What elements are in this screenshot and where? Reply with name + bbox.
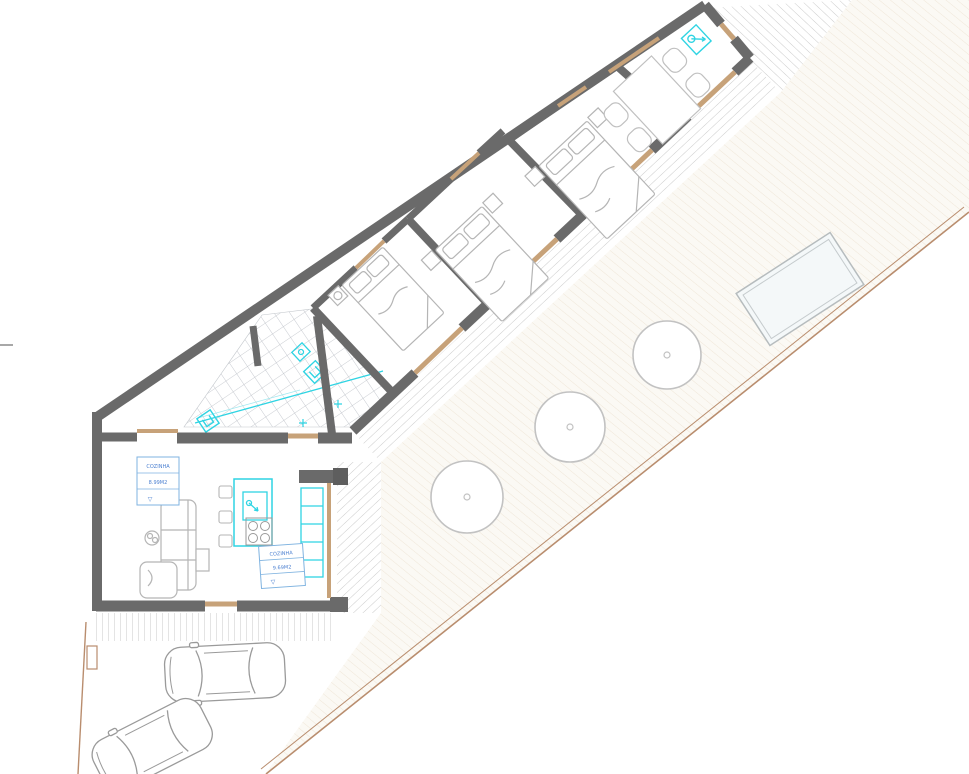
- boundary-line-left: [78, 622, 86, 774]
- stool-icon: [219, 486, 232, 498]
- tree-icon: [535, 392, 605, 462]
- water-heater-icon: [681, 25, 711, 55]
- label-room-name: COZINHA: [146, 464, 170, 470]
- car-icon: [163, 638, 286, 707]
- bathroom-tiled-floor: [184, 309, 390, 427]
- label-room-symbol: ▽: [271, 578, 276, 585]
- armchair-icon: [140, 562, 177, 598]
- tree-icon: [633, 321, 701, 389]
- island-counter: [234, 479, 272, 546]
- sofa-icon: [140, 500, 209, 598]
- floor-plan-page: COZINHA 8.99M2 ▽ COZINHA 9.69M2 ▽: [0, 0, 969, 774]
- floor-plan-drawing: COZINHA 8.99M2 ▽ COZINHA 9.69M2 ▽: [0, 0, 969, 774]
- room-label-kitchen: COZINHA 9.69M2 ▽: [259, 544, 306, 589]
- deck-strip-entry: [96, 613, 333, 641]
- side-table-icon: [196, 549, 209, 571]
- label-room-symbol: ▽: [148, 496, 153, 503]
- living-kitchen: COZINHA 8.99M2 ▽ COZINHA 9.69M2 ▽: [137, 457, 323, 598]
- wall-bed3-nw-a: [509, 106, 558, 140]
- gate-post: [87, 646, 97, 669]
- wall-post: [333, 468, 348, 485]
- bathroom-zone: [184, 309, 390, 432]
- wall-bath-stub: [253, 326, 258, 366]
- wall-corner-se-living: [330, 597, 348, 612]
- room-label-living: COZINHA 8.99M2 ▽: [137, 457, 179, 505]
- kitchen-island: [219, 479, 272, 547]
- tree-icon: [431, 461, 503, 533]
- label-room-area: 8.99M2: [149, 480, 168, 486]
- stool-icon: [219, 535, 232, 547]
- driveway-cars: [84, 638, 286, 774]
- stool-icon: [219, 511, 232, 523]
